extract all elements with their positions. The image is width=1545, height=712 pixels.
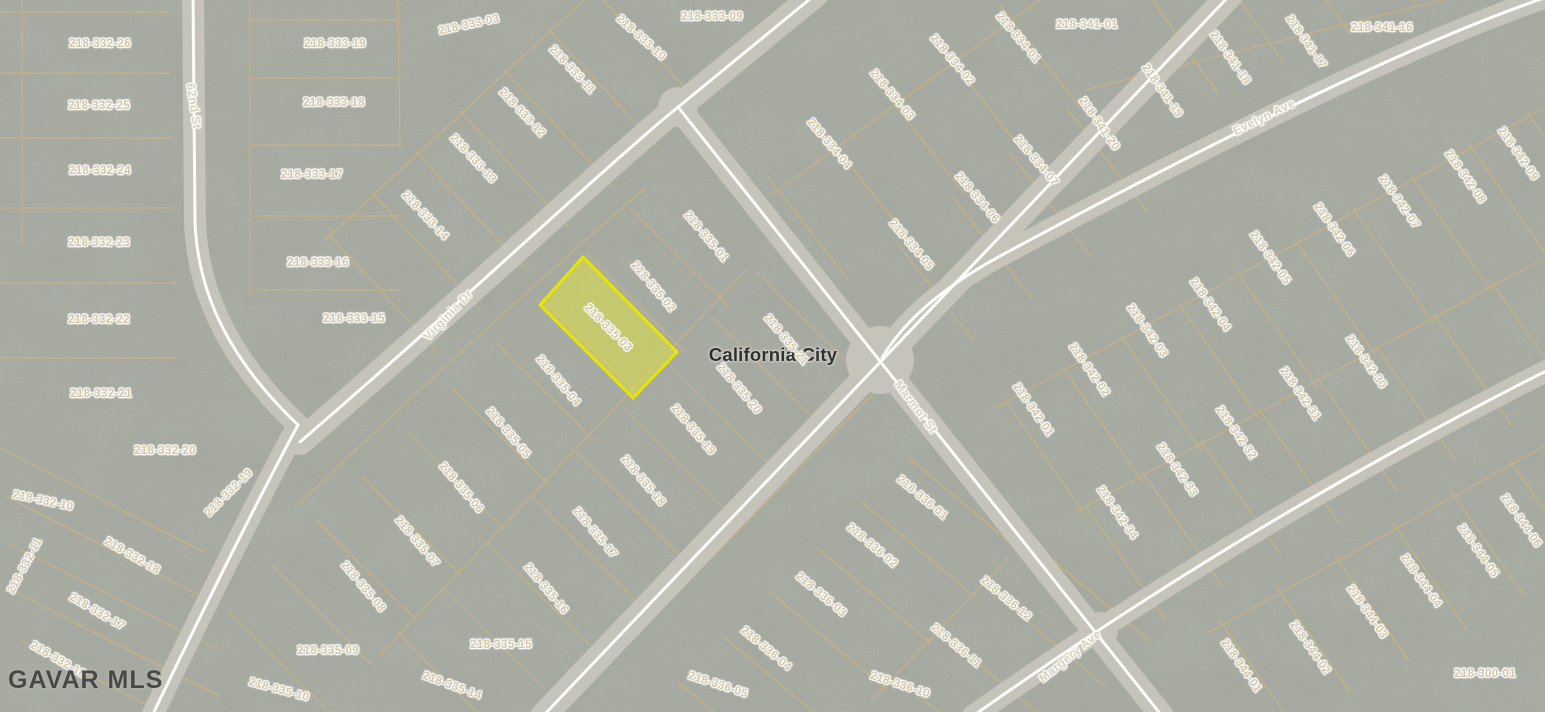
parcel-label: 218-332-21 [70, 388, 132, 400]
parcel-label: 218-332-11 [5, 536, 44, 596]
parcel-label: 218-332-19 [203, 467, 255, 519]
parcel-label: 218-342-06 [1311, 201, 1356, 259]
parcel-label: 218-344-06 [1498, 492, 1543, 550]
parcel-label: 218-334-06 [953, 170, 1002, 225]
parcel-label: 218-342-05 [1247, 229, 1292, 287]
parcel-label: 218-336-04 [738, 625, 793, 674]
parcel-label: 218-342-07 [1376, 173, 1421, 231]
street-label: Marmot St [892, 378, 941, 436]
parcel-label: 218-332-24 [69, 165, 131, 177]
parcel-label: 218-336-02 [844, 522, 899, 571]
parcel-label: 218-333-03 [438, 13, 501, 38]
parcel-label: 218-335-01 [682, 209, 731, 264]
parcel-label: 218-341-16 [1351, 22, 1413, 34]
parcel-label: 218-335-04 [534, 353, 583, 408]
parcel-label: 218-335-21 [762, 312, 811, 367]
parcel-label: 218-333-11 [547, 44, 598, 97]
parcel-label: 218-335-08 [339, 559, 388, 614]
parcel-label: 218-341-17 [1283, 13, 1328, 71]
parcel-label: 218-332-25 [68, 100, 130, 112]
parcel-label: 218-335-15 [470, 639, 532, 651]
parcel-label: 218-335-07 [393, 514, 442, 569]
parcel-label: 218-332-20 [134, 445, 196, 457]
map-labels-layer: 218-332-26218-332-25218-332-24218-332-23… [0, 0, 1545, 712]
parcel-label: 218-335-03 [582, 302, 634, 354]
parcel-label: 218-333-09 [681, 11, 743, 23]
parcel-label: 218-342-03 [1124, 302, 1169, 360]
parcel-label: 218-342-30 [1343, 333, 1388, 391]
parcel-label: 218-341-01 [1056, 19, 1118, 31]
parcel-label: 218-342-01 [1010, 381, 1055, 439]
parcel-label: 218-333-17 [281, 169, 343, 181]
parcel-label: 218-344-03 [1344, 583, 1389, 641]
parcel-label: 218-334-02 [928, 32, 977, 87]
parcel-label: 218-342-34 [1094, 484, 1139, 542]
parcel-label: 218-333-19 [304, 38, 366, 50]
parcel-label: 218-333-16 [287, 257, 349, 269]
parcel-label: 218-332-26 [69, 38, 131, 50]
parcel-label: 218-300-01 [1454, 668, 1516, 680]
parcel-label: 218-335-18 [619, 453, 668, 508]
parcel-label: 218-333-12 [497, 86, 548, 139]
parcel-label: 218-341-18 [1207, 29, 1252, 87]
parcel-label: 218-342-33 [1154, 441, 1199, 499]
parcel-label: 218-334-07 [1012, 133, 1061, 188]
parcel-label: 218-341-19 [1139, 62, 1184, 120]
parcel-label: 218-336-10 [869, 670, 932, 701]
street-label: 62nd St [184, 82, 204, 130]
parcel-label: 218-333-18 [303, 97, 365, 109]
parcel-label: 218-342-32 [1213, 404, 1258, 462]
parcel-label: 218-335-20 [715, 361, 764, 416]
street-label: Margery Ave [1036, 627, 1104, 685]
parcel-label: 218-335-06 [437, 460, 486, 515]
parcel-label: 218-344-02 [1287, 619, 1332, 677]
parcel-label: 218-341-20 [1076, 95, 1121, 153]
parcel-label: 218-335-02 [629, 259, 678, 314]
parcel-label: 218-335-14 [421, 670, 483, 702]
street-label: Virginia Dr [420, 287, 475, 343]
parcel-label: 218-342-31 [1277, 365, 1322, 423]
parcel-label: 218-333-10 [614, 13, 668, 63]
parcel-label: 218-344-05 [1455, 522, 1500, 580]
map-canvas[interactable]: 218-332-26218-332-25218-332-24218-332-23… [0, 0, 1545, 712]
parcel-label: 218-334-03 [868, 67, 917, 122]
parcel-label: 218-332-17 [67, 591, 127, 632]
parcel-label: 218-332-22 [68, 314, 130, 326]
parcel-label: 218-336-12 [978, 575, 1033, 624]
parcel-label: 218-336-01 [894, 474, 949, 523]
parcel-label: 218-332-10 [12, 489, 75, 514]
parcel-label: 218-334-01 [994, 10, 1043, 65]
parcel-label: 218-342-04 [1187, 276, 1232, 334]
parcel-label: 218-335-05 [484, 405, 533, 460]
parcel-label: 218-336-05 [687, 670, 750, 701]
parcel-label: 218-336-03 [793, 571, 848, 620]
parcel-label: 218-333-15 [323, 313, 385, 325]
parcel-label: 218-332-23 [68, 237, 130, 249]
parcel-label: 218-344-01 [1218, 637, 1263, 695]
parcel-label: 218-336-11 [929, 622, 984, 671]
parcel-label: 218-333-13 [448, 132, 499, 185]
parcel-label: 218-334-04 [805, 116, 854, 171]
parcel-label: 218-333-14 [400, 189, 451, 242]
parcel-label: 218-335-16 [522, 561, 571, 616]
parcel-label: 218-342-08 [1442, 148, 1487, 206]
parcel-label: 218-342-09 [1495, 125, 1540, 183]
parcel-label: 218-335-19 [669, 402, 718, 457]
watermark: GAVAR MLS [8, 666, 163, 695]
parcel-label: 218-344-04 [1398, 552, 1443, 610]
parcel-label: 218-335-17 [571, 505, 620, 560]
street-label: Evelyn Ave [1231, 96, 1297, 138]
parcel-label: 218-332-18 [102, 535, 162, 576]
parcel-label: 218-342-02 [1066, 341, 1111, 399]
parcel-label: 218-335-09 [297, 645, 359, 657]
parcel-label: 218-334-05 [887, 217, 936, 272]
parcel-label: 218-335-10 [248, 676, 311, 704]
